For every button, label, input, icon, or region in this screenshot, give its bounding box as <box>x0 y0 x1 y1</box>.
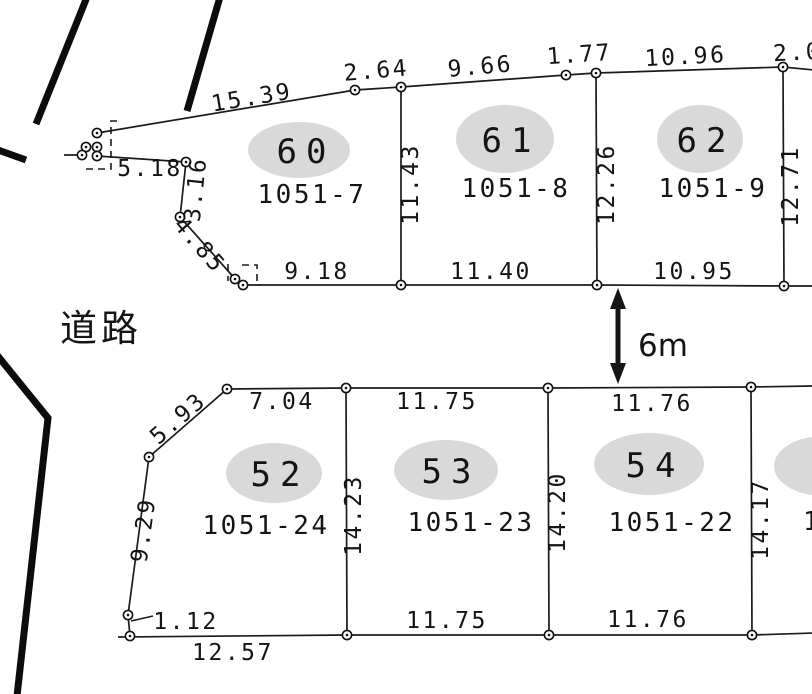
survey-point <box>125 631 134 640</box>
parcel-53-lot-id: 1051-23 <box>407 508 534 538</box>
leader-line-1-12 <box>131 616 153 621</box>
parcel-52-number: 52 <box>251 455 310 495</box>
survey-point <box>92 142 101 151</box>
cadastral-map-canvas: 60 1051-7 61 1051-8 62 1051-9 52 1051-24… <box>0 0 812 694</box>
survey-point <box>77 150 86 159</box>
label-p60-left-b: 3.16 <box>180 155 213 223</box>
label-p61-top-right-edge: 1.77 <box>546 40 613 70</box>
label-p52-top: 7.04 <box>249 389 314 415</box>
survey-point <box>92 151 101 160</box>
label-p62-bottom: 10.95 <box>653 259 735 285</box>
survey-point <box>222 384 231 393</box>
survey-point <box>342 630 351 639</box>
parcel-61-lot-id: 1051-8 <box>462 174 571 204</box>
survey-point <box>544 630 553 639</box>
label-p53-bottom: 11.75 <box>406 608 488 634</box>
cadastral-map-page: 60 1051-7 61 1051-8 62 1051-9 52 1051-24… <box>0 0 812 694</box>
road-width-arrow-head-up <box>610 288 626 309</box>
label-p60-p61-side: 11.43 <box>398 143 424 225</box>
label-p60-left-a: 5.18 <box>117 156 182 182</box>
label-p62-top-right-edge: 2.0 <box>772 39 812 68</box>
survey-point <box>396 280 405 289</box>
survey-point <box>592 280 601 289</box>
survey-point <box>123 610 132 619</box>
label-p53-p54-side: 14.20 <box>545 471 571 553</box>
boundary-upper-block-bottom <box>243 285 812 286</box>
parcel-60-lot-id: 1051-7 <box>258 180 367 210</box>
parcel-62-number: 62 <box>677 121 736 161</box>
parcel-partial-ellipse <box>774 436 812 496</box>
survey-point <box>92 128 101 137</box>
survey-point <box>779 281 788 290</box>
parcel-53-number: 53 <box>422 452 481 492</box>
road-label: 道路 <box>60 307 142 350</box>
label-p60-top-edge: 15.39 <box>209 79 294 118</box>
label-p54-bottom: 11.76 <box>607 607 689 633</box>
label-p53-top: 11.75 <box>396 389 478 415</box>
survey-point <box>747 630 756 639</box>
road-width-label: 6m <box>638 328 688 364</box>
parcel-61-number: 61 <box>482 121 541 161</box>
label-p62-right-side: 12.71 <box>778 145 804 227</box>
survey-point <box>350 85 359 94</box>
parcel-54-number: 54 <box>626 446 685 486</box>
survey-point <box>144 452 153 461</box>
survey-point <box>230 274 239 283</box>
label-p52-left: 9.29 <box>127 496 162 564</box>
survey-point <box>543 383 552 392</box>
survey-point <box>238 280 247 289</box>
label-p54-top: 11.76 <box>611 391 693 417</box>
survey-point <box>396 82 405 91</box>
label-p52-p53-side: 14.23 <box>341 474 367 556</box>
parcel-52-lot-id: 1051-24 <box>202 511 329 541</box>
parcel-60-number: 60 <box>277 132 336 172</box>
parcel-62-lot-id: 1051-9 <box>659 174 768 204</box>
label-p61-top-edge: 9.66 <box>447 51 514 83</box>
survey-point <box>341 383 350 392</box>
road-edge-line-left-stub <box>0 150 26 160</box>
road-edge-line-lower-left <box>0 355 48 694</box>
parcel-partial-lot-id-fragment: 1 <box>803 507 812 537</box>
label-p61-bottom: 11.40 <box>450 259 532 285</box>
parcel-54-lot-id: 1051-22 <box>608 508 735 538</box>
label-p61-p62-side: 12.26 <box>594 143 620 225</box>
label-p54-right-side: 14.17 <box>748 478 774 560</box>
survey-point <box>746 382 755 391</box>
break-bracket-corner-right <box>242 265 257 281</box>
label-p62-top-edge: 10.96 <box>644 42 727 72</box>
road-edge-line-upper-left <box>36 0 87 124</box>
road-width-arrow-head-down <box>610 363 626 384</box>
label-p52-bottom-offset: 1.12 <box>153 609 218 635</box>
survey-point <box>561 70 570 79</box>
label-p60-bottom: 9.18 <box>284 259 349 285</box>
label-p52-diagonal: 5.93 <box>145 387 211 450</box>
survey-point <box>591 68 600 77</box>
road-width-arrow <box>610 288 626 384</box>
label-p52-bottom: 12.57 <box>192 640 274 666</box>
